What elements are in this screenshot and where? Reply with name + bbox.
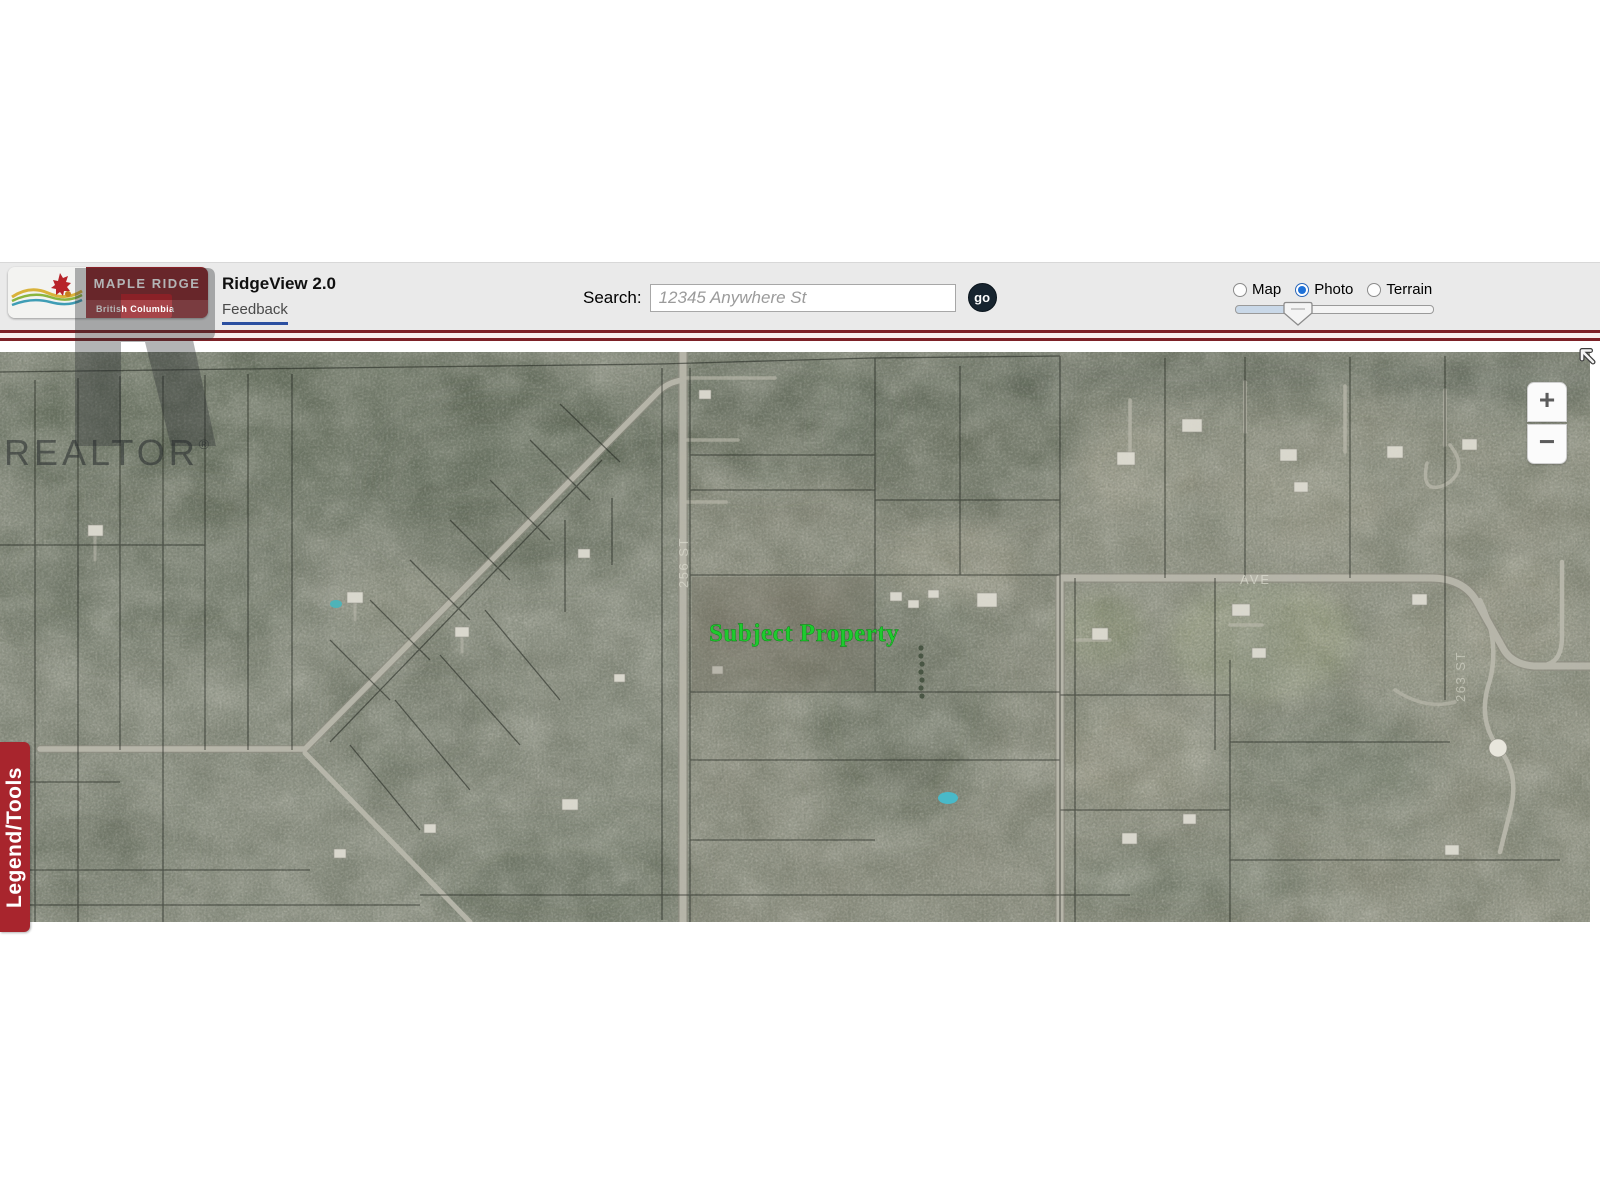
- legend-tools-tab[interactable]: Legend/Tools: [0, 742, 30, 932]
- layer-label-map: Map: [1252, 281, 1281, 298]
- search-group: Search: go: [583, 283, 997, 312]
- maple-ridge-logo-art: [8, 267, 86, 318]
- layer-label-terrain: Terrain: [1386, 281, 1432, 298]
- logo-subtitle: British Columbia: [86, 300, 208, 318]
- go-button[interactable]: go: [968, 283, 997, 312]
- map-zoom-control: + −: [1527, 382, 1567, 464]
- legend-tools-label: Legend/Tools: [3, 767, 27, 908]
- road-label-256st: 256 ST: [676, 537, 691, 588]
- aerial-map[interactable]: 256 ST 263 ST AVE Subject Property: [0, 352, 1590, 922]
- zoom-in-button[interactable]: +: [1527, 382, 1567, 422]
- zoom-out-button[interactable]: −: [1527, 424, 1567, 464]
- maple-ridge-logo: MAPLE RIDGE British Columbia: [8, 267, 208, 318]
- map-viewport[interactable]: 256 ST 263 ST AVE Subject Property: [0, 352, 1590, 922]
- base-layer-switcher: Map Photo Terrain: [1233, 281, 1446, 298]
- radio-terrain[interactable]: [1367, 283, 1381, 297]
- layer-label-photo: Photo: [1314, 281, 1353, 298]
- header-rule-bottom: [0, 338, 1600, 341]
- layer-option-map[interactable]: Map: [1233, 281, 1281, 298]
- maple-ridge-logo-text: MAPLE RIDGE British Columbia: [86, 267, 208, 318]
- road-label-263st: 263 ST: [1453, 651, 1468, 702]
- logo-title: MAPLE RIDGE: [86, 267, 208, 300]
- road-label-ave: AVE: [1240, 572, 1271, 587]
- search-label: Search:: [583, 288, 642, 308]
- search-input[interactable]: [650, 284, 956, 312]
- feedback-link[interactable]: Feedback: [222, 301, 288, 325]
- radio-photo[interactable]: [1295, 283, 1309, 297]
- expand-corner-icon[interactable]: [1577, 345, 1599, 372]
- opacity-slider-handle[interactable]: [1283, 301, 1313, 332]
- app-title: RidgeView 2.0: [222, 274, 336, 294]
- layer-option-terrain[interactable]: Terrain: [1367, 281, 1432, 298]
- subject-property-label: Subject Property: [709, 620, 899, 647]
- wave-leaf-icon: [8, 267, 86, 318]
- radio-map[interactable]: [1233, 283, 1247, 297]
- opacity-slider-track[interactable]: [1235, 305, 1434, 314]
- layer-option-photo[interactable]: Photo: [1295, 281, 1353, 298]
